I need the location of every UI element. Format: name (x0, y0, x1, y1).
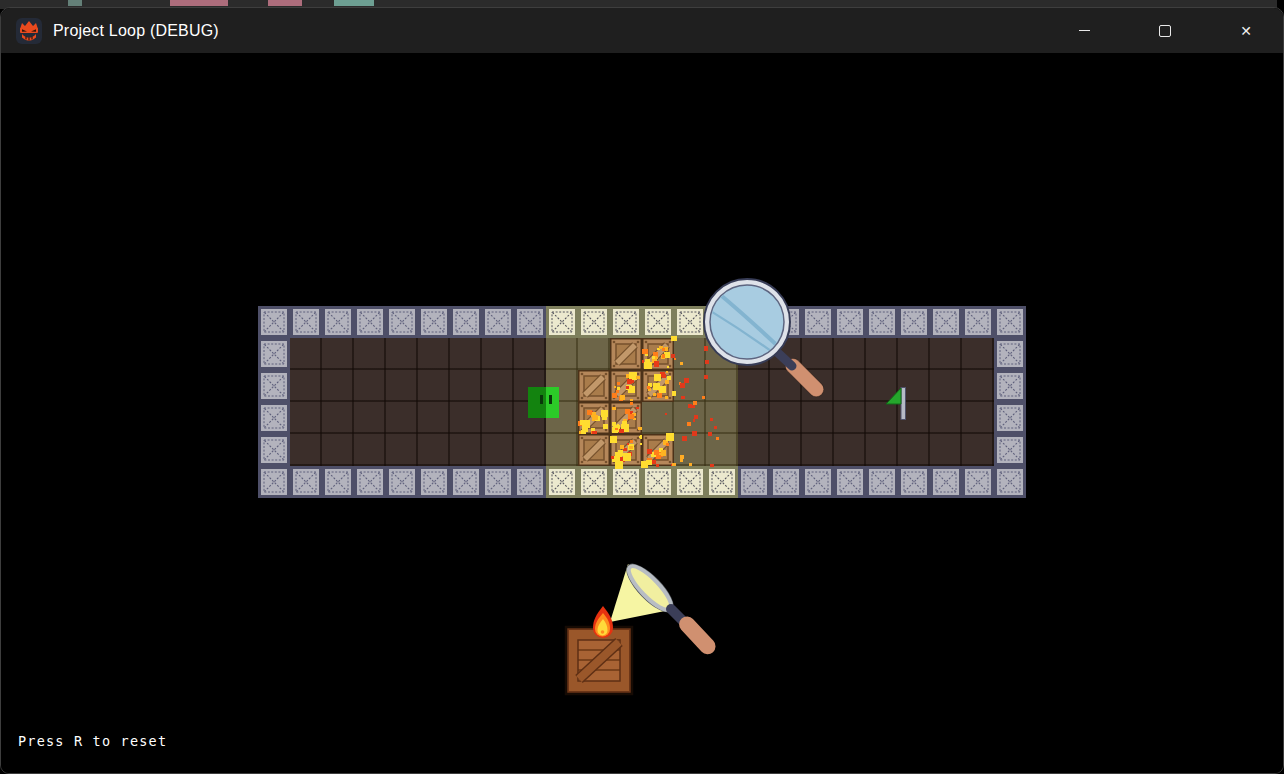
metal-crate-tile (994, 466, 1026, 498)
fire-particle (593, 415, 598, 420)
fire-particle (617, 382, 620, 385)
ember-particle (665, 413, 667, 415)
lit-metal-crate-tile (642, 306, 674, 338)
border-tile (898, 466, 930, 498)
border-tile (322, 306, 354, 338)
fire-particle (652, 356, 655, 359)
close-button[interactable]: ✕ (1223, 8, 1269, 53)
border-tile (770, 466, 802, 498)
metal-crate-tile (322, 306, 354, 338)
metal-crate-tile (994, 306, 1026, 338)
metal-crate-tile (834, 306, 866, 338)
burning-crate (610, 434, 642, 466)
border-tile (258, 466, 290, 498)
fire-particle (655, 384, 660, 389)
fire-particle (648, 397, 651, 400)
border-tile (994, 466, 1026, 498)
minimize-button[interactable] (1061, 8, 1107, 53)
lit-metal-crate-tile (642, 466, 674, 498)
fire-particle (642, 360, 645, 363)
border-tile (258, 338, 290, 370)
fire-particle (657, 393, 662, 398)
lit-metal-crate-tile (610, 306, 642, 338)
metal-crate-tile (354, 466, 386, 498)
border-tile (258, 306, 290, 338)
border-tile (386, 466, 418, 498)
window-controls: ✕ (1026, 8, 1269, 53)
goal-flag (884, 386, 910, 422)
border-tile (866, 306, 898, 338)
fire-particle (646, 460, 651, 465)
metal-crate-tile (418, 466, 450, 498)
fire-particle (623, 448, 626, 451)
fire-particle (627, 379, 632, 384)
border-tile (354, 466, 386, 498)
ember-particle (682, 436, 687, 441)
fire-particle (633, 418, 635, 420)
fire-particle (656, 464, 659, 467)
border-tile (578, 306, 610, 338)
ember-particle (671, 354, 675, 358)
player-character (528, 387, 559, 418)
border-tile (290, 466, 322, 498)
fire-particle (639, 436, 641, 438)
border-tile (962, 306, 994, 338)
ember-particle (672, 463, 675, 466)
fire-particle (628, 386, 635, 393)
fire-particle (616, 390, 619, 393)
burning-glass-sprite (552, 548, 732, 708)
burning-glass-scene (552, 548, 732, 708)
border-tile (930, 306, 962, 338)
border-tile (418, 306, 450, 338)
metal-crate-tile (258, 402, 290, 434)
fire-particle (638, 427, 642, 431)
close-icon: ✕ (1240, 24, 1252, 38)
reset-hint-text: Press R to reset (18, 733, 167, 749)
border-tile (418, 466, 450, 498)
metal-crate-tile (258, 306, 290, 338)
ember-particle (680, 383, 685, 388)
fire-particle (584, 420, 588, 424)
metal-crate-tile (450, 306, 482, 338)
fire-particle (617, 424, 619, 426)
burning-crate (610, 370, 642, 402)
border-tile (994, 370, 1026, 402)
magnifying-glass (687, 262, 837, 412)
fire-particle (623, 453, 631, 461)
fire-particle (629, 446, 633, 450)
border-tile (482, 466, 514, 498)
border-tile (642, 466, 674, 498)
border-tile (482, 306, 514, 338)
fire-particle (612, 422, 616, 426)
ember-particle (681, 396, 684, 399)
fire-particle (620, 395, 625, 400)
metal-crate-tile (514, 306, 546, 338)
lit-metal-crate-tile (610, 466, 642, 498)
title-bar[interactable]: Project Loop (DEBUG) ✕ (1, 8, 1283, 53)
ember-particle (716, 437, 719, 440)
fire-particle (627, 443, 629, 445)
background-code-text (268, 0, 302, 6)
ember-particle (692, 431, 697, 436)
border-tile (642, 306, 674, 338)
burning-crate (610, 402, 642, 434)
ember-particle (680, 362, 683, 365)
player-eye (549, 395, 552, 404)
fire-particle (619, 429, 623, 433)
wooden-crate-sprite (610, 338, 642, 370)
border-tile (802, 466, 834, 498)
border-tile (994, 402, 1026, 434)
border-tile (546, 306, 578, 338)
metal-crate-tile (482, 306, 514, 338)
flame-icon (593, 606, 613, 638)
fire-particle (642, 349, 647, 354)
metal-crate-tile (930, 306, 962, 338)
ember-particle (710, 418, 713, 421)
border-tile (930, 466, 962, 498)
wooden-crate (578, 434, 610, 466)
fire-particle (615, 461, 623, 469)
lit-metal-crate-tile (546, 466, 578, 498)
fire-particle (610, 436, 617, 443)
lit-metal-crate-tile (578, 306, 610, 338)
ember-particle (680, 455, 684, 459)
app-ninja-face-icon (16, 18, 42, 44)
fire-particle (654, 361, 659, 366)
border-tile (578, 466, 610, 498)
lit-metal-crate-tile (674, 466, 706, 498)
fire-particle (636, 407, 639, 410)
fire-particle (620, 445, 624, 449)
ember-particle (689, 463, 692, 466)
metal-crate-tile (962, 306, 994, 338)
fire-particle (630, 399, 633, 402)
fire-particle (612, 407, 616, 411)
fire-particle (626, 386, 629, 389)
border-tile (674, 466, 706, 498)
border-tile (994, 434, 1026, 466)
border-tile (514, 466, 546, 498)
metal-crate-tile (290, 306, 322, 338)
wooden-crate (610, 338, 642, 370)
background-code-text (170, 0, 228, 6)
metal-crate-tile (866, 306, 898, 338)
wooden-crate-sprite (578, 370, 610, 402)
minimize-icon (1079, 30, 1090, 31)
border-tile (290, 306, 322, 338)
wooden-crate-sprite (578, 434, 610, 466)
maximize-icon (1159, 25, 1171, 37)
fire-particle (602, 415, 606, 419)
border-tile (610, 306, 642, 338)
border-tile (834, 466, 866, 498)
border-tile (706, 466, 738, 498)
ember-particle (694, 415, 698, 419)
border-tile (258, 402, 290, 434)
fire-particle (622, 421, 627, 426)
fire-particle (615, 428, 617, 430)
player-eye (540, 395, 543, 404)
metal-crate-tile (258, 434, 290, 466)
fire-particle (630, 440, 633, 443)
ember-particle (674, 358, 676, 360)
window-title: Project Loop (DEBUG) (53, 22, 219, 40)
border-tile (354, 306, 386, 338)
metal-crate-tile (898, 306, 930, 338)
border-tile (834, 306, 866, 338)
game-area[interactable]: Press R to reset (1, 53, 1283, 773)
fire-particle (580, 420, 585, 425)
border-tile (962, 466, 994, 498)
metal-crate-tile (738, 466, 770, 498)
border-tile (258, 370, 290, 402)
metal-crate-tile (322, 466, 354, 498)
metal-crate-tile (258, 370, 290, 402)
fire-particle (616, 454, 620, 458)
border-tile (450, 306, 482, 338)
border-tile (738, 466, 770, 498)
metal-crate-tile (514, 466, 546, 498)
wooden-crate (578, 370, 610, 402)
metal-crate-tile (386, 466, 418, 498)
fire-particle (653, 393, 657, 397)
ember-particle (708, 432, 712, 436)
flag-sprite (884, 386, 910, 422)
metal-crate-tile (770, 466, 802, 498)
metal-crate-tile (258, 338, 290, 370)
border-tile (994, 338, 1026, 370)
fire-particle (587, 410, 592, 415)
lit-metal-crate-tile (578, 466, 610, 498)
border-tile (386, 306, 418, 338)
game-window: Project Loop (DEBUG) ✕ Press R to reset (0, 7, 1284, 774)
lit-metal-crate-tile (706, 466, 738, 498)
fire-particle (630, 372, 636, 378)
border-tile (610, 466, 642, 498)
ember-particle (710, 464, 713, 467)
metal-crate-tile (994, 434, 1026, 466)
fire-particle (628, 414, 633, 419)
maximize-button[interactable] (1142, 8, 1188, 53)
ember-particle (680, 459, 683, 462)
metal-crate-tile (994, 402, 1026, 434)
metal-crate-tile (802, 466, 834, 498)
ember-particle (693, 419, 695, 421)
metal-crate-tile (834, 466, 866, 498)
border-tile (898, 306, 930, 338)
border-tile (514, 306, 546, 338)
fire-particle (612, 393, 617, 398)
fire-particle (645, 359, 651, 365)
metal-crate-tile (962, 466, 994, 498)
metal-crate-tile (930, 466, 962, 498)
fire-particle (647, 386, 650, 389)
metal-crate-tile (290, 466, 322, 498)
fire-particle (636, 376, 639, 379)
metal-crate-tile (994, 370, 1026, 402)
metal-crate-tile (258, 466, 290, 498)
metal-crate-tile (354, 306, 386, 338)
metal-crate-tile (450, 466, 482, 498)
border-tile (546, 466, 578, 498)
burning-crate (578, 402, 610, 434)
background-code-text (68, 0, 82, 6)
ember-particle (687, 422, 691, 426)
metal-crate-tile (866, 466, 898, 498)
lit-metal-crate-tile (546, 306, 578, 338)
ember-particle (714, 426, 717, 429)
border-tile (258, 434, 290, 466)
background-code-text (334, 0, 374, 6)
metal-crate-tile (898, 466, 930, 498)
fire-particle (603, 424, 608, 429)
border-tile (450, 466, 482, 498)
fire-particle (630, 402, 633, 405)
border-tile (994, 306, 1026, 338)
fire-particle (654, 374, 661, 381)
fire-particle (614, 386, 616, 388)
metal-crate-tile (482, 466, 514, 498)
border-tile (866, 466, 898, 498)
border-tile (322, 466, 354, 498)
fire-particle (647, 449, 652, 454)
metal-crate-tile (418, 306, 450, 338)
metal-crate-tile (994, 338, 1026, 370)
metal-crate-tile (386, 306, 418, 338)
fire-particle (611, 456, 614, 459)
magnifying-glass-sprite (687, 262, 837, 412)
